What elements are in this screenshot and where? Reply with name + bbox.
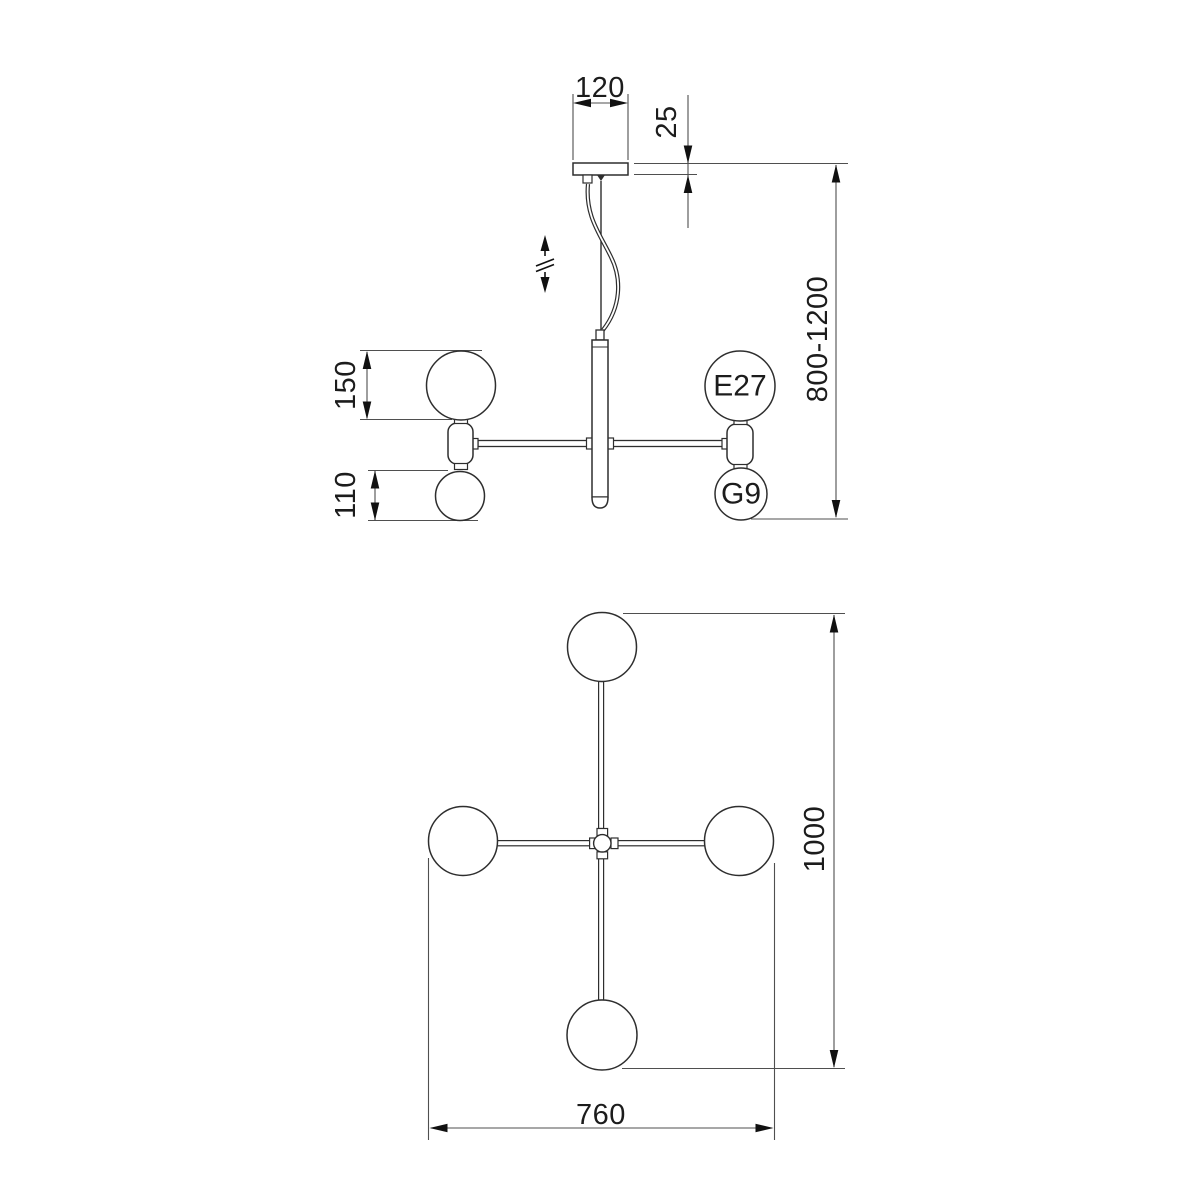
technical-drawing-page: 120 25 800-1200 150 110 E27 G9 (0, 0, 1200, 1200)
plan-arm-bottom (599, 859, 604, 1001)
label-canopy-width: 120 (575, 72, 625, 104)
rod-top-connector (596, 330, 604, 340)
arrow-110-bottom-icon (371, 503, 380, 521)
top-view: 1000 760 (429, 613, 846, 1141)
label-overall-length: 1000 (799, 806, 831, 873)
side-view-fixture (427, 163, 776, 521)
plan-arm-top (599, 682, 604, 829)
right-socket-body (727, 424, 753, 465)
plan-globe-bottom (567, 1000, 637, 1070)
arrow-range-bottom-icon (832, 500, 841, 518)
height-adjustable-icon (536, 235, 554, 293)
label-large-globe-diameter: 150 (330, 360, 362, 410)
label-small-globe-diameter: 110 (330, 471, 362, 519)
side-view: 120 25 800-1200 150 110 E27 G9 (330, 72, 848, 521)
label-suspension-range: 800-1200 (802, 276, 834, 403)
plan-hub-bracket-right (611, 838, 618, 849)
ceiling-canopy (573, 163, 628, 175)
arrow-1000-top-icon (830, 615, 839, 633)
center-rod (592, 340, 608, 497)
plan-globe-left (429, 807, 498, 876)
label-canopy-height: 25 (651, 105, 683, 138)
arrow-25-top-icon (684, 146, 693, 164)
pendant-lamp-dimension-drawing: 120 25 800-1200 150 110 E27 G9 (0, 0, 1200, 1200)
label-socket-e27: E27 (713, 370, 766, 403)
arrow-110-top-icon (371, 471, 380, 489)
left-socket-body (448, 423, 473, 464)
adjust-up-arrow-icon (541, 235, 550, 251)
arm-right (613, 441, 723, 447)
arrow-760-right-icon (756, 1124, 774, 1133)
left-small-globe (436, 472, 485, 521)
plan-hub-bracket-bottom (597, 852, 608, 859)
arrow-150-bottom-icon (363, 402, 372, 420)
plan-center-hub (594, 835, 611, 852)
arrow-1000-bottom-icon (830, 1050, 839, 1068)
cord-grip (583, 175, 592, 183)
left-socket-ring-bottom (455, 464, 468, 470)
top-view-fixture (429, 613, 774, 1071)
arrow-760-left-icon (430, 1124, 448, 1133)
label-socket-g9: G9 (721, 478, 761, 511)
plan-arm-right (618, 841, 706, 846)
label-overall-width: 760 (576, 1099, 626, 1131)
cable-grip-icon (597, 175, 605, 181)
rod-bottom-dome (592, 498, 608, 509)
plan-arm-left (497, 841, 590, 846)
arrow-range-top-icon (832, 165, 841, 183)
arm-left (478, 441, 588, 447)
top-view-dimension-lines (429, 614, 846, 1141)
top-view-arrowheads (430, 615, 839, 1133)
power-cord-outer (588, 184, 619, 330)
arrow-25-bottom-icon (684, 175, 693, 193)
plan-globe-top (568, 613, 637, 682)
adjust-down-arrow-icon (541, 277, 550, 293)
arrow-150-top-icon (363, 351, 372, 369)
plan-globe-right (705, 807, 774, 876)
left-large-globe (427, 351, 496, 420)
